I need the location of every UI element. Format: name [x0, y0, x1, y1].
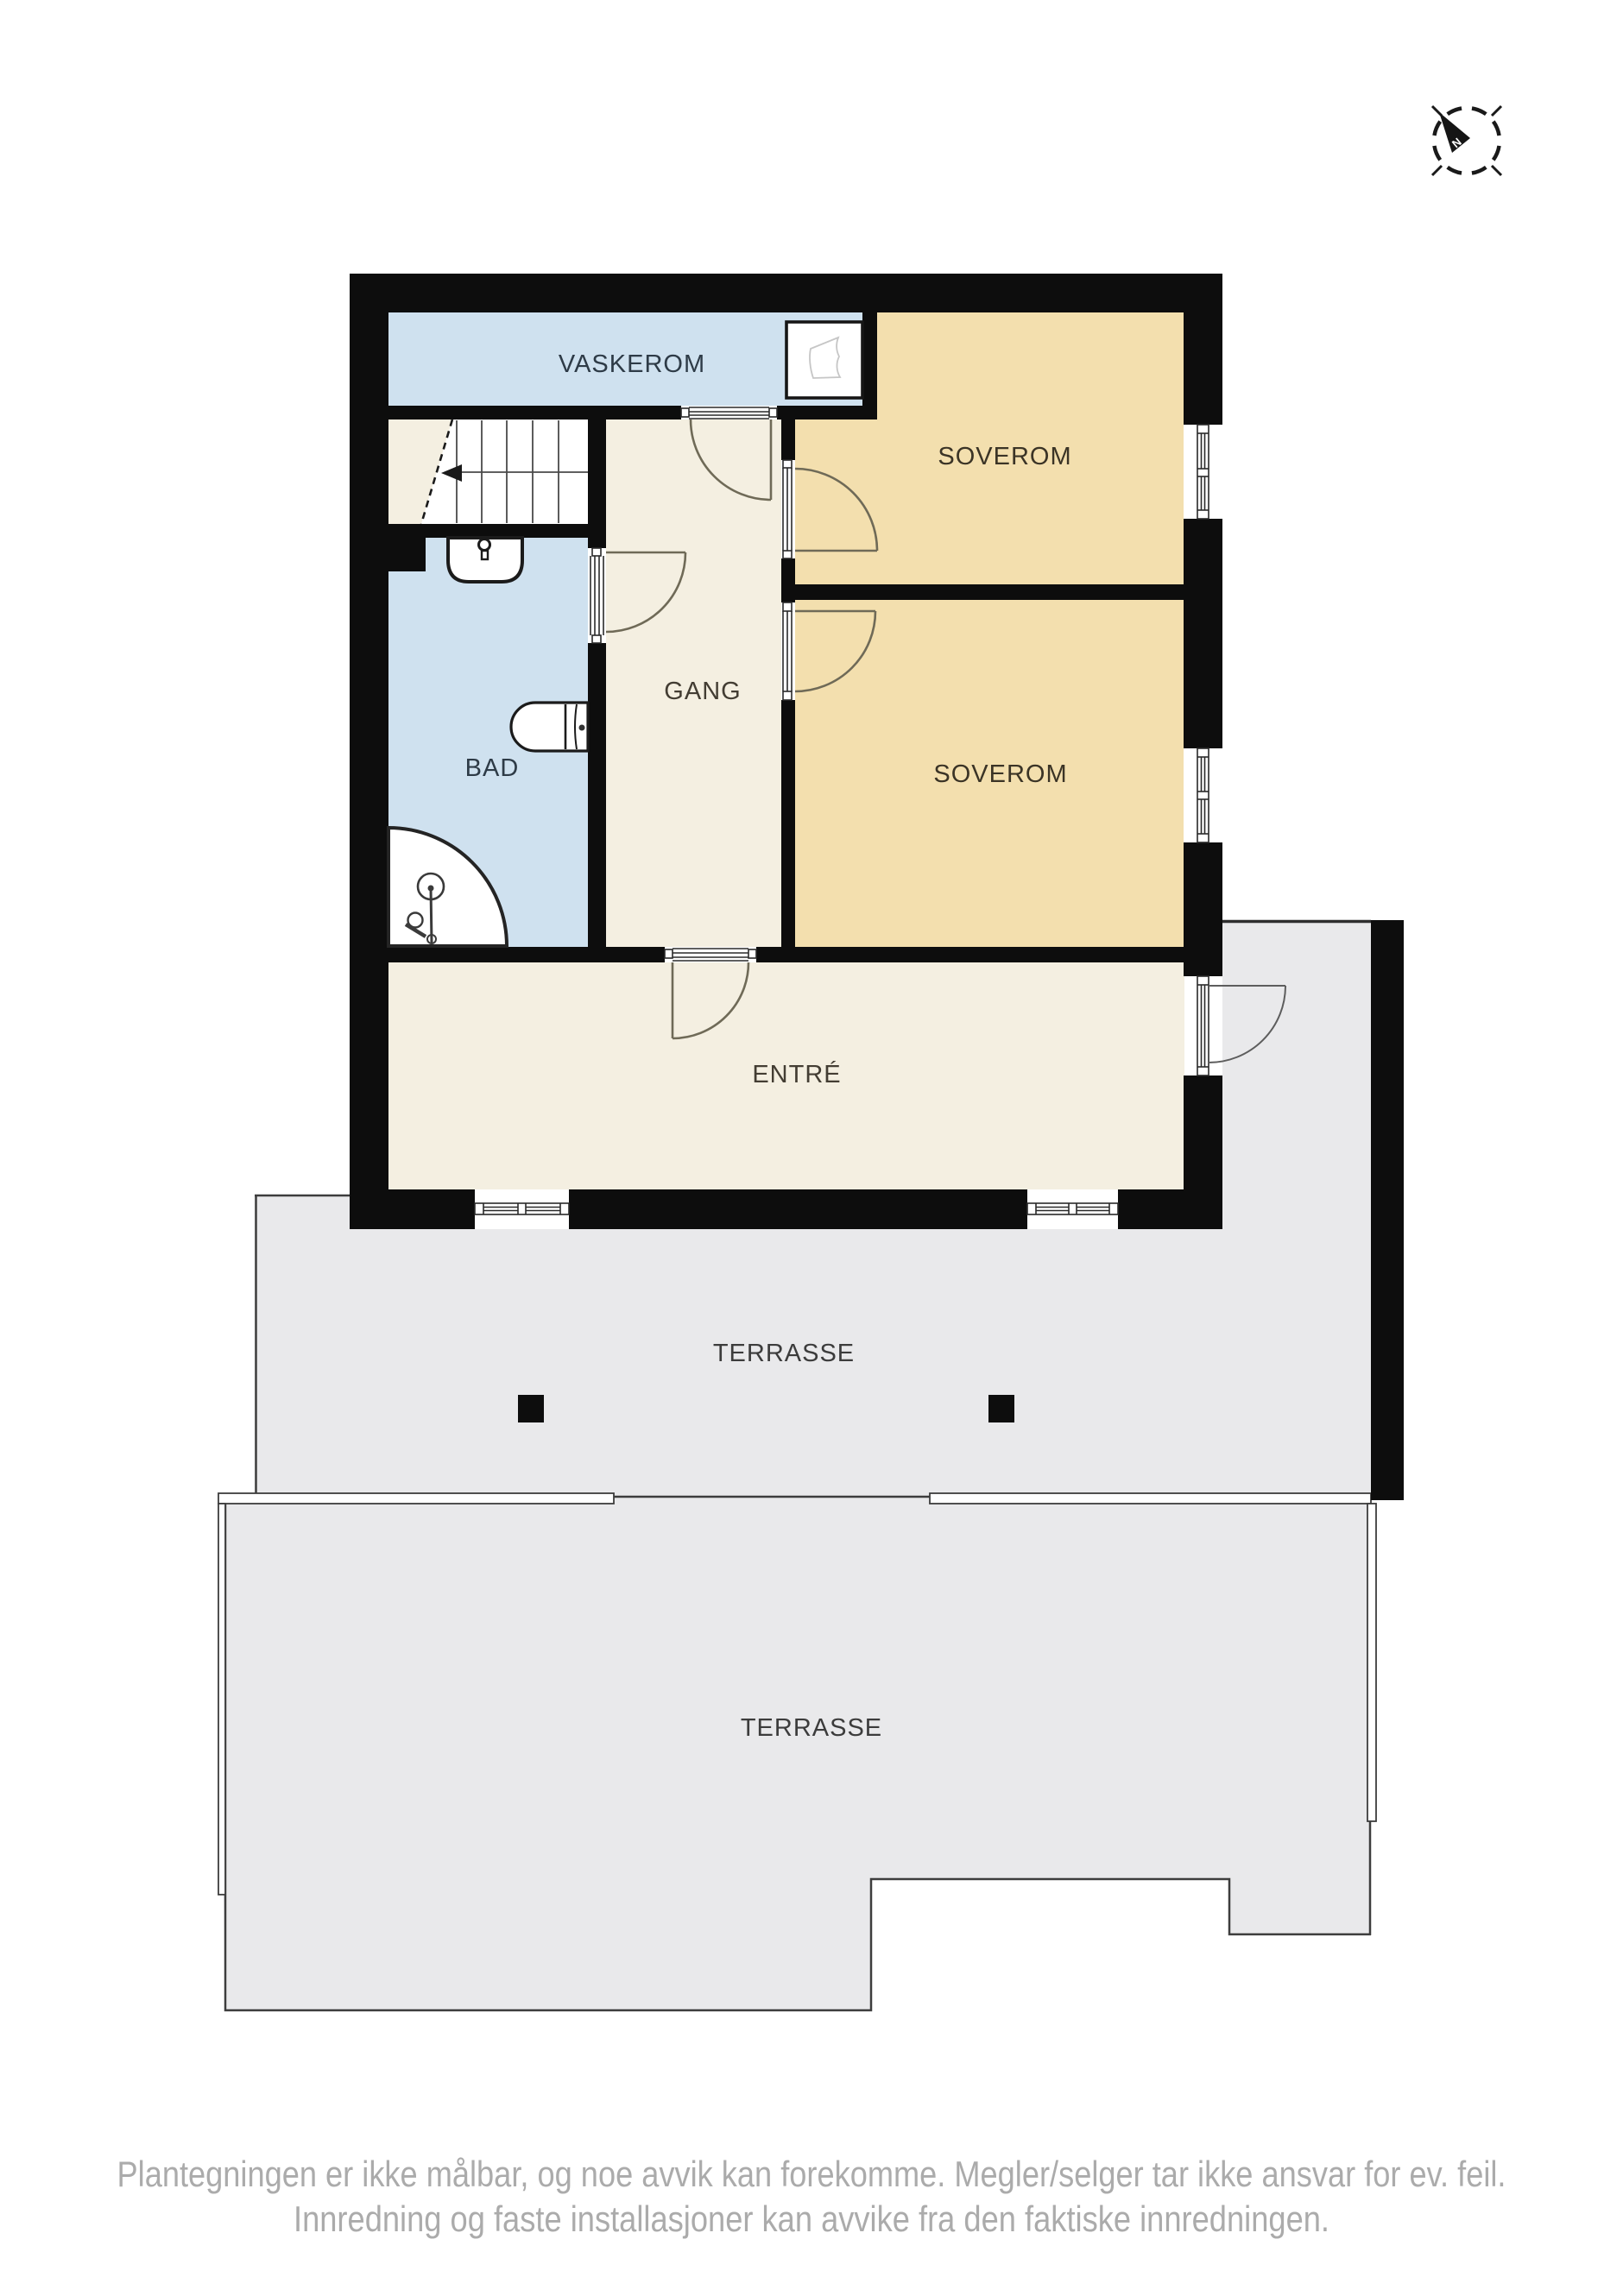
- svg-text:GANG: GANG: [664, 678, 741, 705]
- svg-text:BAD: BAD: [465, 754, 520, 782]
- svg-text:TERRASSE: TERRASSE: [713, 1340, 855, 1367]
- svg-text:Innredning og faste installasj: Innredning og faste installasjoner kan a…: [294, 2198, 1329, 2239]
- svg-text:ENTRÉ: ENTRÉ: [752, 1060, 841, 1088]
- svg-text:Plantegningen er ikke målbar,: Plantegningen er ikke målbar, og noe avv…: [117, 2154, 1506, 2194]
- svg-text:SOVEROM: SOVEROM: [933, 760, 1067, 788]
- svg-text:VASKEROM: VASKEROM: [559, 350, 705, 378]
- svg-text:SOVEROM: SOVEROM: [938, 443, 1071, 470]
- svg-text:TERRASSE: TERRASSE: [741, 1714, 882, 1742]
